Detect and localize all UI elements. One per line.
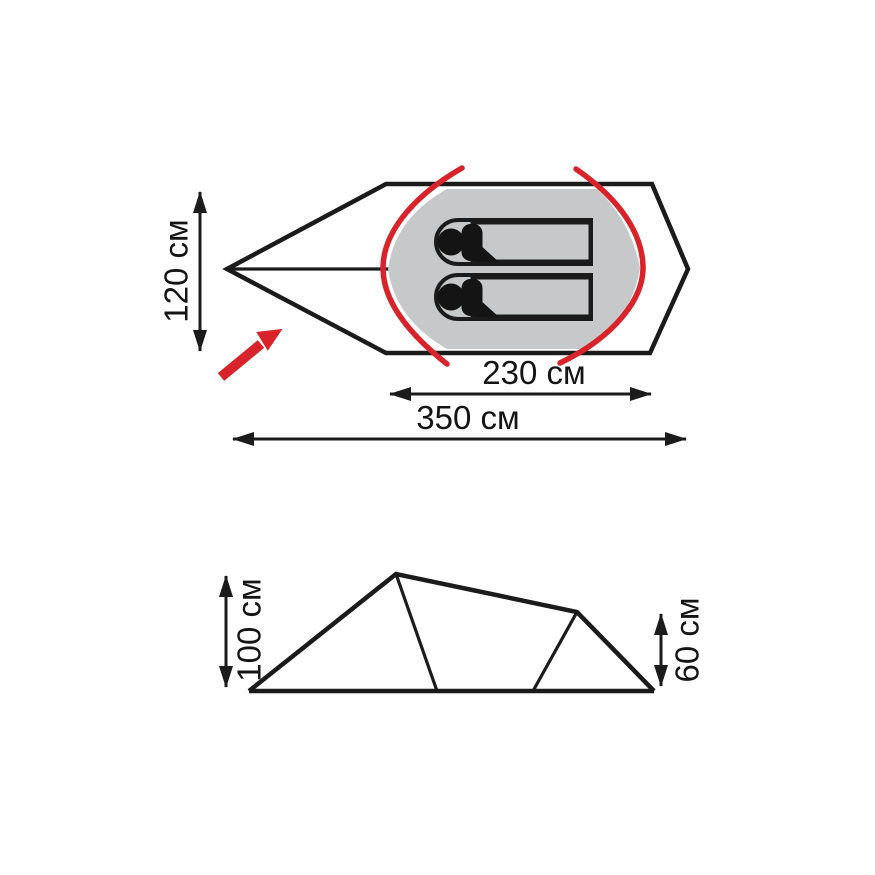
dimension-inner-length: 230 см (390, 354, 651, 394)
dimension-total-length: 350 см (233, 399, 686, 439)
side-front-pole-line (396, 574, 437, 691)
person-head (438, 229, 465, 256)
dimension-peak-height-label: 100 см (231, 578, 268, 681)
top-view: 120 см 230 см 350 см (158, 168, 689, 439)
inner-tent-floor (388, 189, 640, 349)
diagram-svg: 120 см 230 см 350 см 100 см 60 см (0, 0, 875, 875)
side-profile-outline (249, 574, 654, 691)
dimension-peak-height: 100 см (226, 576, 268, 687)
dimension-total-length-label: 350 см (416, 399, 519, 436)
entrance-arrow-shaft (221, 344, 261, 377)
dimension-width: 120 см (158, 192, 201, 351)
tent-dimension-diagram: 120 см 230 см 350 см 100 см 60 см (0, 0, 875, 875)
entrance-arrow-icon (221, 325, 283, 377)
dimension-inner-length-label: 230 см (482, 354, 585, 391)
side-rear-pole-line (533, 612, 577, 691)
dimension-width-label: 120 см (158, 219, 195, 322)
person-head (438, 284, 465, 311)
dimension-rear-height-label: 60 см (669, 597, 706, 682)
dimension-rear-height: 60 см (661, 597, 706, 686)
side-view: 100 см 60 см (226, 574, 706, 691)
